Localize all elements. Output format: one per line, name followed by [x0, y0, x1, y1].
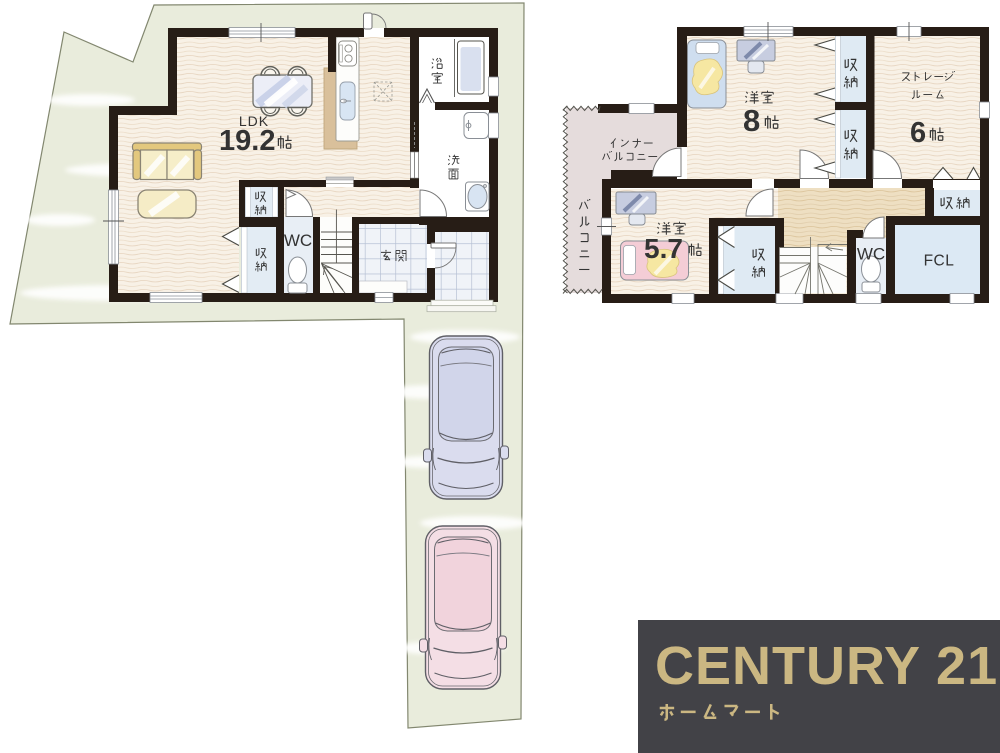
- svg-text:6: 6: [910, 117, 926, 149]
- svg-text:WC: WC: [857, 245, 885, 264]
- svg-text:5.7: 5.7: [644, 233, 683, 264]
- svg-text:WC: WC: [284, 231, 312, 250]
- svg-text:8: 8: [743, 103, 760, 138]
- svg-text:FCL: FCL: [924, 253, 955, 270]
- svg-text:CENTURY 21: CENTURY 21: [655, 636, 998, 696]
- svg-text:19.2: 19.2: [219, 125, 275, 157]
